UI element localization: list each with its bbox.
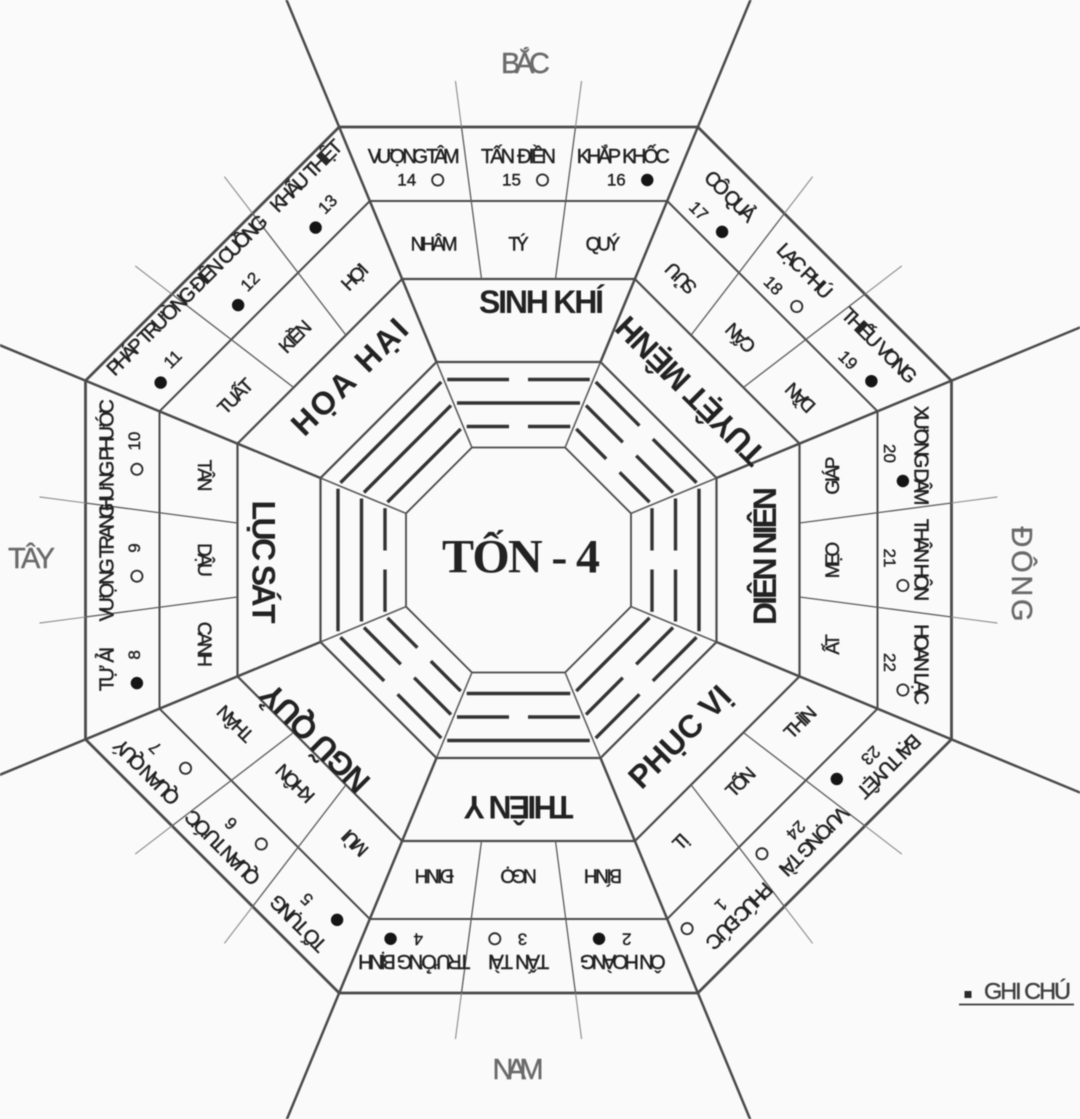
svg-text:XƯƠNG DÂM: XƯƠNG DÂM <box>910 406 933 506</box>
svg-text:NGỌ: NGỌ <box>500 865 536 886</box>
svg-text:TỐN - 4: TỐN - 4 <box>442 529 600 584</box>
svg-text:ĐINH: ĐINH <box>415 865 454 886</box>
svg-text:2: 2 <box>622 930 631 949</box>
svg-text:NAM: NAM <box>493 1054 544 1086</box>
svg-text:DIÊN NIÊN: DIÊN NIÊN <box>747 487 783 625</box>
svg-text:16: 16 <box>607 171 626 190</box>
svg-text:HƯNG PHƯỚC: HƯNG PHƯỚC <box>96 399 119 511</box>
svg-text:KHẮP KHỐC: KHẮP KHỐC <box>577 144 670 168</box>
svg-text:4: 4 <box>414 930 423 949</box>
svg-text:ẤT: ẤT <box>822 634 844 655</box>
svg-text:TỰ ẢI: TỰ ẢI <box>96 647 119 692</box>
svg-text:TÂY: TÂY <box>8 542 55 575</box>
svg-text:ÔN HOÀNG: ÔN HOÀNG <box>580 950 666 973</box>
svg-text:9: 9 <box>125 543 144 552</box>
svg-text:21: 21 <box>880 549 899 568</box>
svg-text:MẸO: MẸO <box>823 542 844 578</box>
svg-text:SINH KHÍ: SINH KHÍ <box>479 284 605 320</box>
svg-text:GIÁP: GIÁP <box>823 457 844 495</box>
svg-text:CANH: CANH <box>193 622 214 667</box>
svg-text:HOAN LẠC: HOAN LẠC <box>910 624 932 705</box>
svg-text:GHI CHÚ: GHI CHÚ <box>984 978 1071 1004</box>
svg-text:15: 15 <box>502 171 521 190</box>
svg-text:LỤC SÁT: LỤC SÁT <box>246 501 282 624</box>
svg-text:10: 10 <box>125 432 144 451</box>
svg-text:THIÊN Y: THIÊN Y <box>464 789 574 825</box>
svg-text:VƯỢNG TÂM: VƯỢNG TÂM <box>368 145 460 168</box>
svg-text:BÍNH: BÍNH <box>584 865 622 886</box>
svg-text:TRƯỞNG BỊNH: TRƯỞNG BỊNH <box>358 950 470 974</box>
svg-text:BẮC: BẮC <box>501 46 550 80</box>
svg-text:8: 8 <box>125 650 144 659</box>
svg-text:14: 14 <box>397 171 416 190</box>
svg-text:TÂN: TÂN <box>193 460 215 492</box>
svg-text:20: 20 <box>880 444 899 463</box>
svg-text:TẤN TÀI: TẤN TÀI <box>488 950 549 973</box>
svg-text:NHÂM: NHÂM <box>411 234 458 256</box>
svg-text:TẤN ĐIỀN: TẤN ĐIỀN <box>481 145 556 168</box>
svg-text:TÝ: TÝ <box>508 235 529 256</box>
svg-text:DẬU: DẬU <box>193 543 215 577</box>
svg-text:QUÝ: QUÝ <box>586 235 621 256</box>
svg-text:3: 3 <box>518 930 527 949</box>
svg-text:VƯỢNG TRANG: VƯỢNG TRANG <box>97 503 119 622</box>
svg-text:22: 22 <box>880 653 899 672</box>
svg-text:THÂN HÔN: THÂN HÔN <box>910 519 933 602</box>
